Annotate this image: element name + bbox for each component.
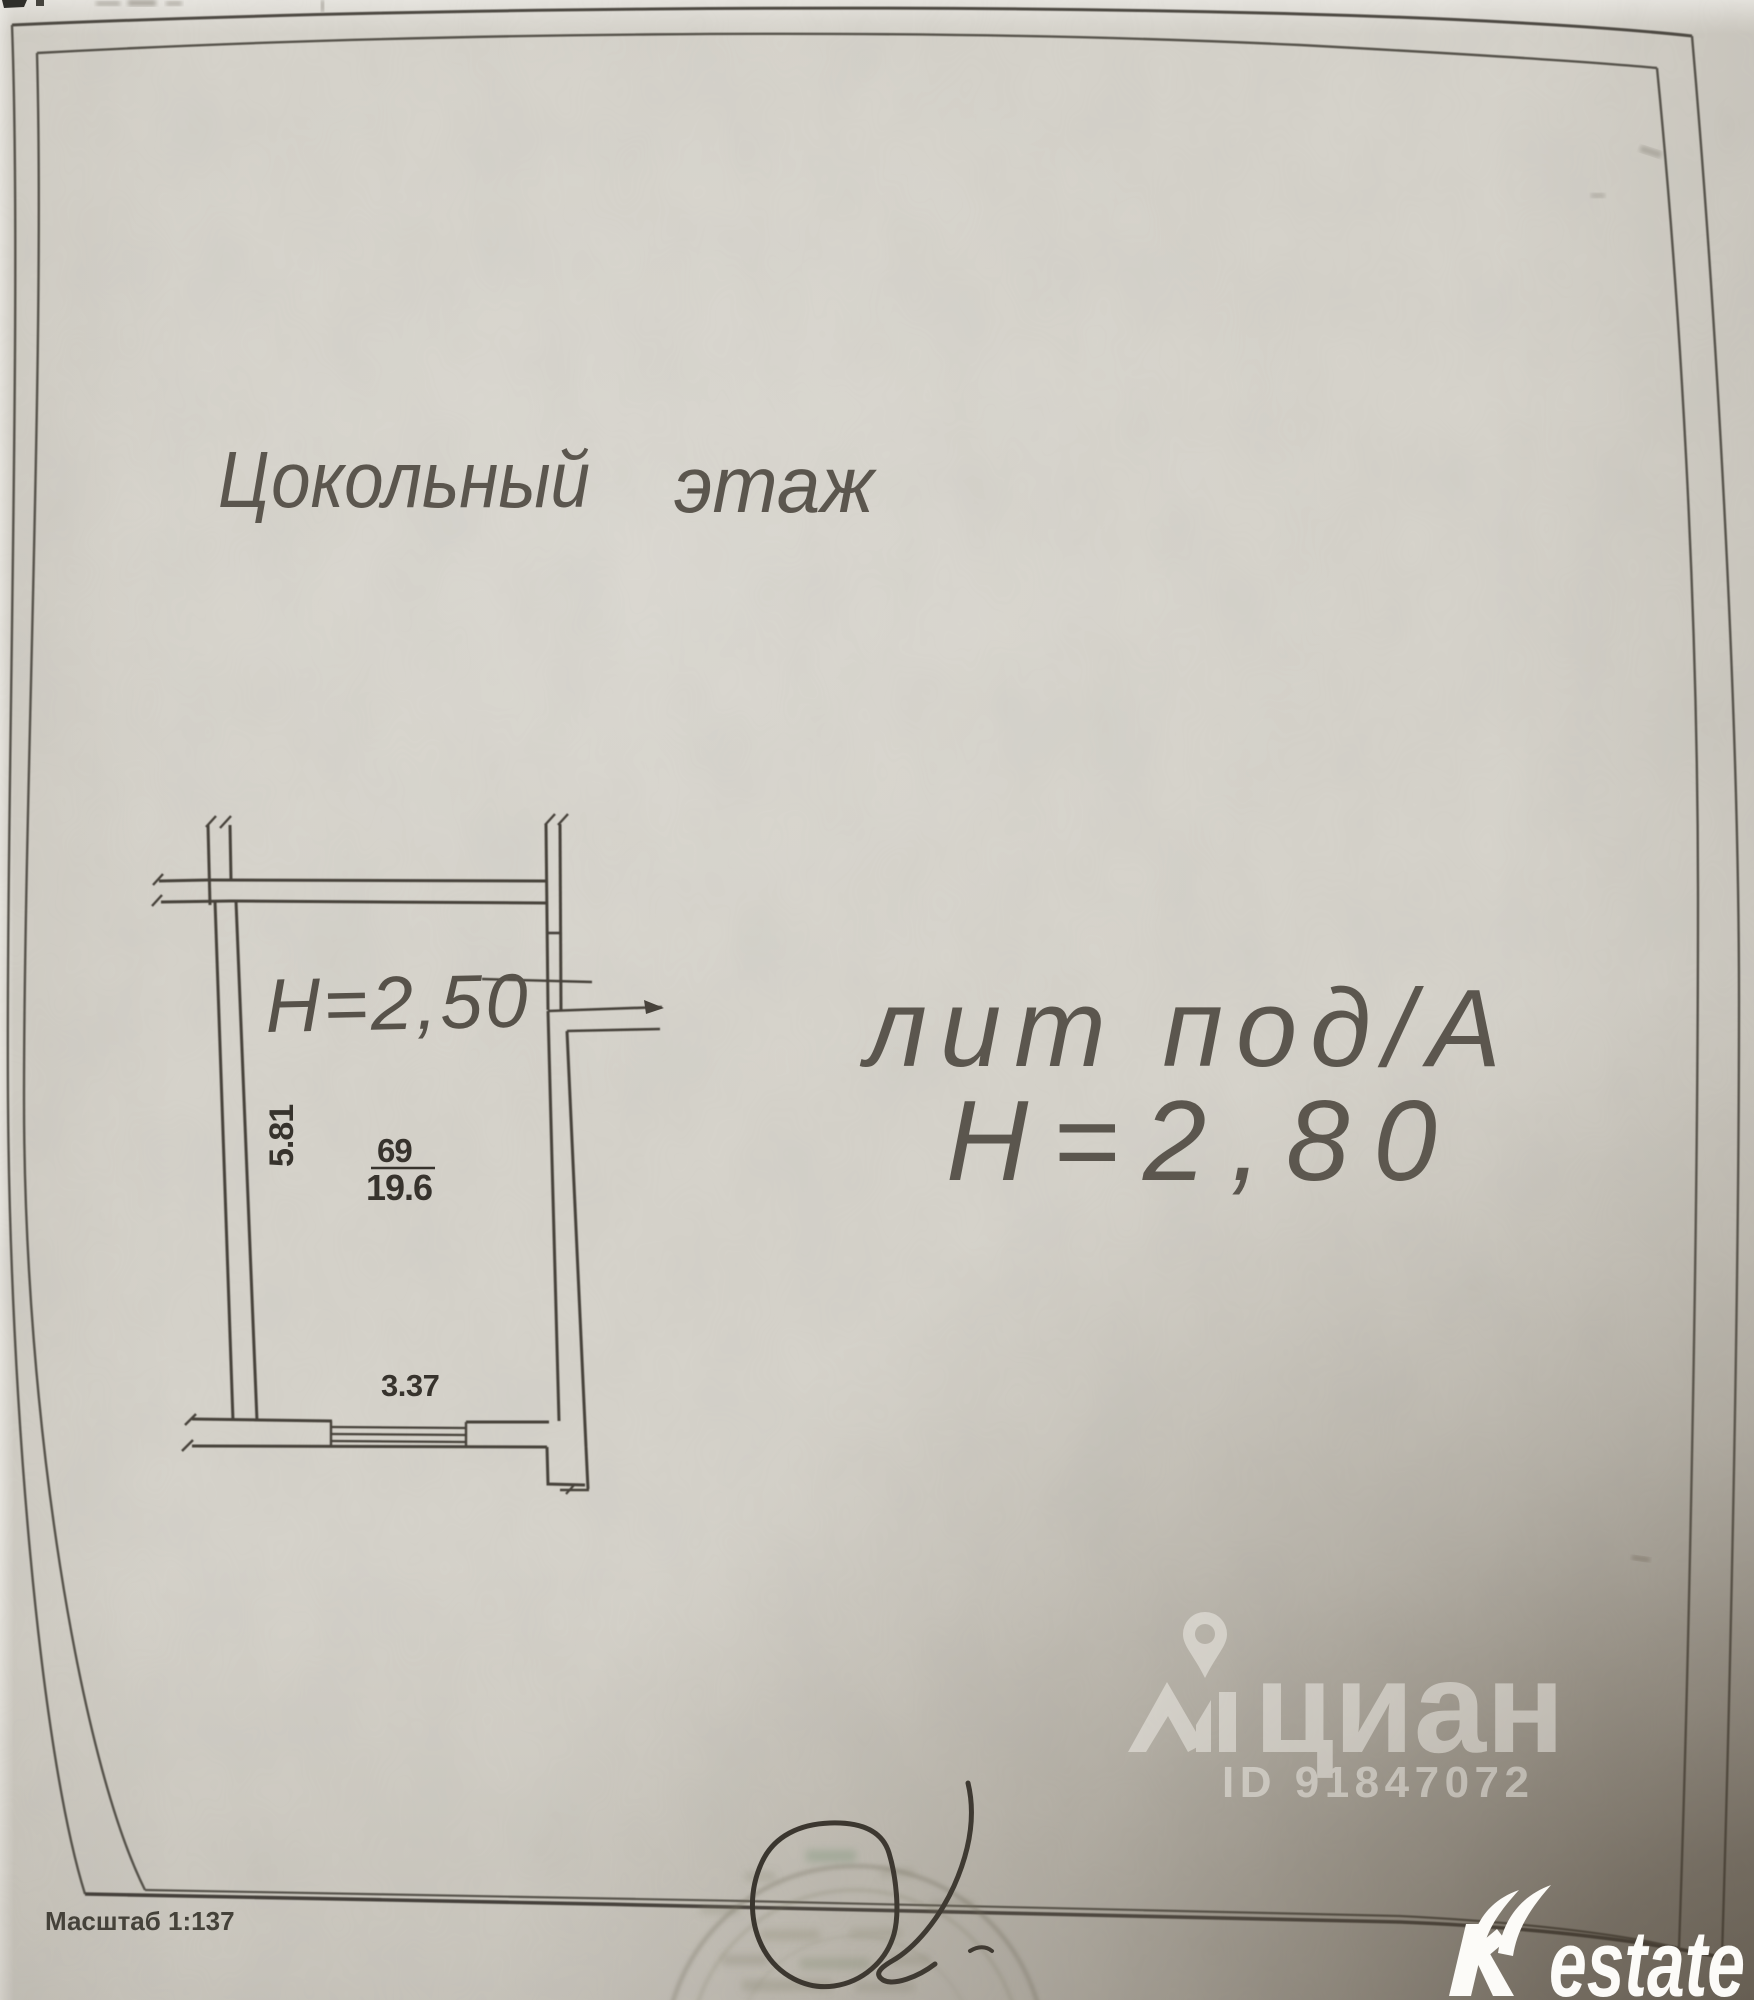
svg-text:Масштаб 1:137: Масштаб 1:137: [45, 1906, 235, 1936]
svg-text:ID 91847072: ID 91847072: [1222, 1758, 1535, 1807]
svg-text:estate: estate: [1549, 1911, 1745, 2000]
